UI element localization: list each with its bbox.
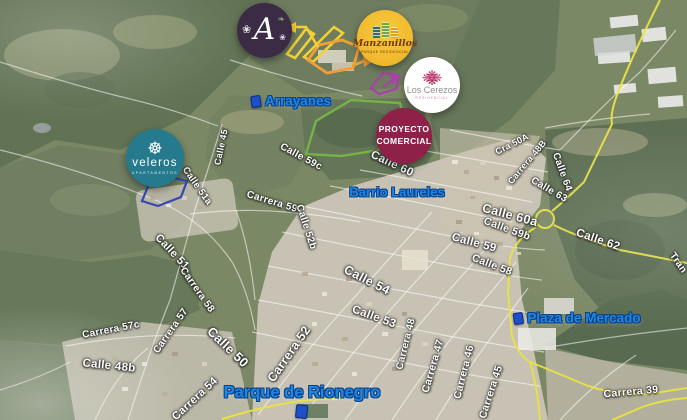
- los-cerezos-subtitle: RESIDENCIAL: [415, 97, 448, 101]
- map-marker-icon: [513, 311, 525, 324]
- manzanillos-project-badge: Manzanillos PARQUE RESIDENCIAL: [357, 10, 413, 66]
- proyecto-comercial-line1: PROYECTO: [379, 124, 430, 136]
- leaf-icon: ❧: [277, 15, 285, 24]
- map-marker-icon: [250, 94, 262, 107]
- area-label-text: Plaza de Mercado: [527, 311, 640, 326]
- los-cerezos-project-badge: ❋ Los Cerezos RESIDENCIAL: [404, 57, 460, 113]
- building-icon: [391, 27, 398, 38]
- building-icon: [382, 22, 389, 38]
- flower-icon: ❀: [242, 25, 251, 36]
- area-label-text: Parque de Rionegro: [224, 384, 381, 403]
- satellite-map: Calle 45Calle 51aCarrera 59Calle 59cCall…: [0, 0, 687, 420]
- map-marker-icon: [295, 404, 308, 419]
- veleros-name: veleros: [132, 158, 177, 170]
- area-label-arrayanes: Arrayanes: [251, 94, 331, 109]
- arrayanes-logo-letter: A: [254, 15, 276, 45]
- proyecto-comercial-badge: PROYECTO COMERCIAL: [376, 108, 432, 164]
- los-cerezos-name: Los Cerezos: [407, 86, 458, 95]
- area-labels-layer: ArrayanesBarrio LaurelesPlaza de Mercado…: [0, 0, 687, 420]
- proyecto-comercial-line2: COMERCIAL: [376, 136, 431, 148]
- veleros-subtitle: APARTAMENTOS: [132, 172, 178, 176]
- area-label-plaza-de-mercado: Plaza de Mercado: [513, 311, 640, 326]
- area-label-text: Arrayanes: [265, 94, 331, 109]
- area-label-parque-de-rionegro: Parque de Rionegro: [224, 384, 381, 403]
- ship-wheel-icon: ☸: [147, 140, 162, 157]
- building-icon: [373, 26, 380, 38]
- veleros-project-badge: ☸ veleros APARTAMENTOS: [126, 129, 184, 187]
- area-label-barrio-laureles: Barrio Laureles: [349, 185, 444, 200]
- manzanillos-subtitle: PARQUE RESIDENCIAL: [361, 51, 409, 55]
- manzanillos-name: Manzanillos: [353, 39, 418, 49]
- flower-icon: ❀: [279, 34, 286, 42]
- cherry-blossom-icon: ❋: [427, 69, 437, 81]
- arrayanes-project-badge: ❀ ❀ ❧ A: [237, 3, 292, 58]
- buildings-icon: [373, 22, 398, 38]
- area-label-text: Barrio Laureles: [349, 185, 444, 200]
